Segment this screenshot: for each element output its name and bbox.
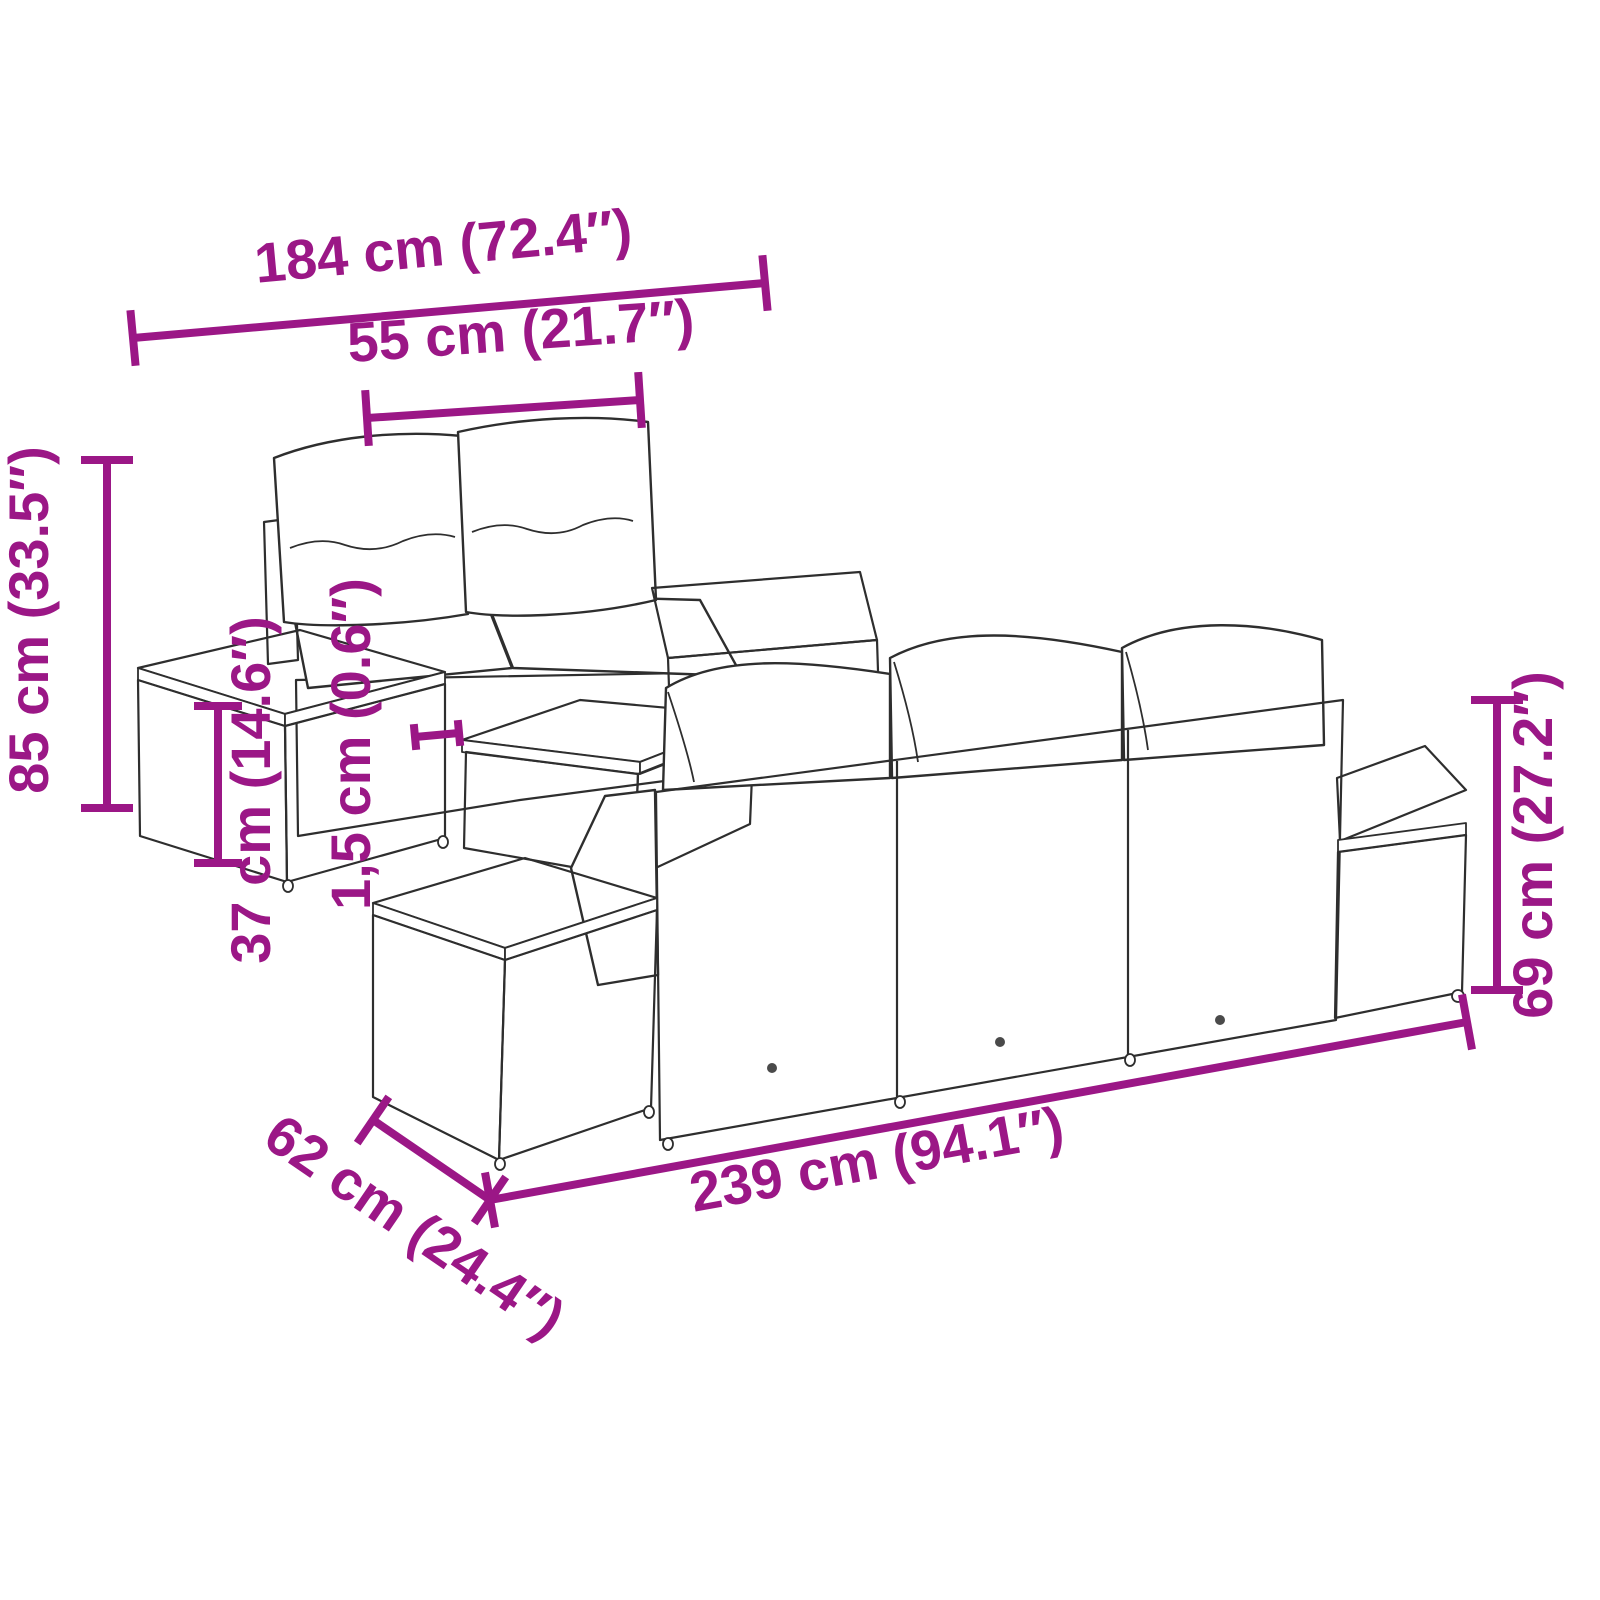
- table-rim: [462, 740, 640, 774]
- three-seater-sofa: [571, 625, 1466, 1150]
- end-table-face: [1335, 835, 1466, 1018]
- cube-foot: [495, 1158, 505, 1170]
- cube-rim: [373, 903, 505, 960]
- dimension-label-back-height: 69 cm (27.2″): [1501, 671, 1564, 1018]
- back-cushion-1: [663, 663, 890, 790]
- dimension-depth: 62 cm (24.4″): [254, 1097, 576, 1350]
- cube-foot: [438, 836, 448, 848]
- dimension-label-slat-thickness: 1,5 cm (0.6″): [319, 578, 382, 910]
- sofa-foot: [663, 1138, 673, 1150]
- dimension-label-depth: 62 cm (24.4″): [254, 1102, 576, 1350]
- dimension-total-height: 85 cm (33.5″): [0, 446, 133, 808]
- dimension-label-total-width: 184 cm (72.4″): [252, 196, 635, 294]
- screw-dot: [767, 1063, 777, 1073]
- dimension-back-height: 69 cm (27.2″): [1471, 671, 1564, 1018]
- cube-foot: [283, 880, 293, 892]
- screw-dot: [995, 1037, 1005, 1047]
- cube-foot: [644, 1106, 654, 1118]
- dimension-total-length: 239 cm (94.1″): [485, 995, 1472, 1228]
- screw-dot: [1215, 1015, 1225, 1025]
- seat-cushion-corner: [571, 790, 658, 985]
- dimension-label-total-length: 239 cm (94.1″): [685, 1094, 1069, 1224]
- back-cushion-right: [458, 418, 656, 616]
- dimension-diagram: 184 cm (72.4″) 55 cm (21.7″) 85 cm (33.5…: [0, 0, 1600, 1600]
- dimension-label-seat-width: 55 cm (21.7″): [345, 287, 696, 374]
- dimension-label-total-height: 85 cm (33.5″): [0, 446, 60, 793]
- dimension-side-table-height: 37 cm (14.6″): [194, 616, 282, 963]
- dimension-label-side-table-height: 37 cm (14.6″): [219, 616, 282, 963]
- sofa-foot: [895, 1096, 905, 1108]
- sofa-foot: [1125, 1054, 1135, 1066]
- back-cushion-3: [1122, 625, 1324, 760]
